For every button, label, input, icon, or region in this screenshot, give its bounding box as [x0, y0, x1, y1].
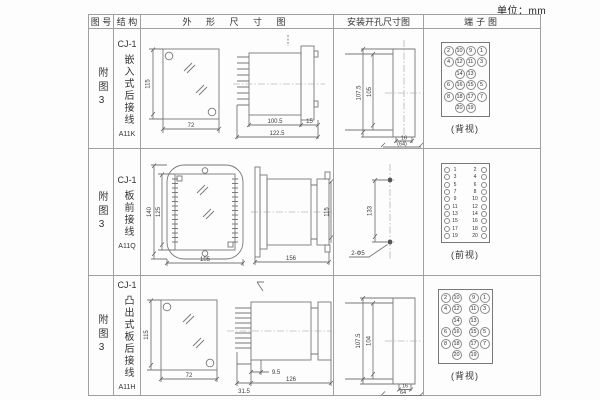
side-view: 9.5 31.5 126: [227, 282, 333, 395]
terminal-hole: [481, 226, 487, 232]
row2-structure: CJ-1 板前接线 A11Q: [114, 149, 141, 276]
terminal-number: 12: [472, 204, 479, 210]
code-label: A11H: [119, 384, 136, 391]
header-structure: 结 构: [114, 15, 141, 29]
model-label: CJ-1: [117, 280, 136, 290]
terminal-hole: [481, 196, 487, 202]
row2-terminal-cell: 12 34 56 78 910 1112 1314 1516 1718 1920…: [424, 149, 541, 276]
dim-front-height-outer: 140: [147, 206, 153, 217]
terminal-number: 15: [452, 218, 459, 224]
outline-drawing-a11k: 115 72 100.5 15: [141, 31, 333, 147]
terminal-hole: [444, 196, 450, 202]
dim-pin-depth: 31.5: [238, 389, 250, 395]
terminal-number: 17: [452, 226, 459, 232]
terminal-hole: [444, 204, 450, 210]
dim-front-height: 115: [146, 78, 152, 88]
terminal-pin: 19: [466, 103, 476, 113]
dim-hole-pitch: 133: [367, 205, 373, 216]
dim-outer-height: 107.5: [356, 332, 362, 348]
dim-lip: 9.5: [272, 370, 281, 376]
model-label: CJ-1: [117, 39, 136, 49]
row1-terminal-cell: 21091 412113 1413 616155 818177 2019 (背视…: [424, 29, 541, 149]
terminal-number: 6: [472, 182, 479, 188]
row1-fig-no: 附图3: [89, 29, 114, 149]
terminal-pin: 20: [455, 103, 465, 113]
front-view: 115 72: [146, 47, 222, 133]
row3-structure: CJ-1 凸出式板后接线 A11H: [114, 276, 141, 396]
terminal-number: 10: [472, 196, 479, 202]
dim-front-width: 105: [200, 257, 211, 263]
terminal-caption: (背视): [451, 122, 479, 135]
terminal-pin: 3: [480, 304, 490, 314]
terminal-pin: 9: [469, 293, 479, 303]
fig-no-label: 附图3: [96, 67, 106, 110]
terminal-pin: 17: [466, 92, 476, 102]
terminal-pin: 7: [480, 339, 490, 349]
header-fig-no: 图 号: [89, 15, 114, 29]
dim-side-length: 156: [286, 256, 297, 262]
terminal-pin: 3: [477, 57, 487, 67]
terminal-caption: (背视): [451, 369, 479, 382]
terminal-pin: 10: [452, 293, 462, 303]
terminal-pin: 5: [480, 327, 490, 337]
terminal-number: 7: [452, 189, 459, 195]
terminal-hole: [444, 182, 450, 188]
terminal-hole: [481, 218, 487, 224]
terminal-pin: 6: [444, 80, 454, 90]
terminal-pin: 10: [455, 46, 465, 56]
terminal-pin: 8: [441, 339, 451, 349]
terminal-hole: [481, 211, 487, 217]
terminal-number: 16: [472, 218, 479, 224]
dim-width-ref: (64): [397, 141, 407, 147]
terminal-hole: [444, 233, 450, 239]
dim-slot-width: 16: [401, 383, 407, 389]
terminal-pin: 2: [441, 293, 451, 303]
side-view: 100.5 15 122.5: [233, 35, 325, 139]
terminal-number: 8: [472, 189, 479, 195]
terminal-pin: 13: [469, 316, 479, 326]
terminal-pin: 9: [466, 46, 476, 56]
fig-no-label: 附图3: [96, 191, 106, 234]
front-view: 115 72: [144, 298, 219, 382]
dim-front-width: 72: [186, 373, 193, 379]
dimension-table: 图 号 结 构 外 形 尺 寸 图 安装开孔尺寸图 端子图 附图3 CJ-1 嵌…: [88, 14, 541, 396]
mount-label: 凸出式板后接线: [122, 295, 132, 379]
row3-outline-cell: 115 72 9.5: [141, 276, 334, 396]
terminal-hole: [481, 174, 487, 180]
outline-drawing-a11q: 140 125 105: [141, 157, 333, 267]
row2-install-cell: 133 2-Φ5: [334, 149, 424, 276]
terminal-pin: 18: [452, 339, 462, 349]
row3-terminal-cell: 21091 412113 1413 616155 818177 2019 (背视…: [424, 276, 541, 396]
terminal-hole: [481, 189, 487, 195]
header-outline: 外 形 尺 寸 图: [141, 15, 334, 29]
terminal-pin: 1: [480, 293, 490, 303]
install-drawing-a11q: 133 2-Φ5: [335, 156, 423, 268]
terminal-pin: 2: [444, 46, 454, 56]
terminal-pin: 19: [469, 350, 479, 360]
row1-outline-cell: 115 72 100.5 15: [141, 29, 334, 149]
dim-depth-total: 122.5: [269, 131, 285, 137]
terminal-pin: 15: [469, 327, 479, 337]
terminal-number: 1: [452, 167, 459, 173]
terminal-number: 9: [452, 196, 459, 202]
terminal-pin: 16: [455, 80, 465, 90]
mount-label: 嵌入式后接线: [122, 54, 132, 126]
terminal-pin: 12: [455, 57, 465, 67]
terminal-hole: [481, 167, 487, 173]
row1-structure: CJ-1 嵌入式后接线 A11K: [114, 29, 141, 149]
terminal-pin: 1: [477, 46, 487, 56]
terminal-pin: 20: [452, 350, 462, 360]
terminal-pin: 14: [455, 69, 465, 79]
dim-front-height-inner: 125: [156, 206, 162, 217]
terminal-pin: 8: [444, 92, 454, 102]
dim-body-length: 126: [286, 377, 297, 383]
dim-flange: 15: [306, 119, 313, 125]
dim-inner-height: 104: [366, 335, 372, 346]
dim-depth-body: 100.5: [267, 119, 283, 125]
terminal-pin: 17: [469, 339, 479, 349]
document-page: 单位：mm 图 号 结 构 外 形 尺 寸 图 安装开孔尺寸图 端子图 附图3 …: [0, 0, 600, 400]
terminal-pin: 4: [441, 304, 451, 314]
header-terminal: 端子图: [424, 15, 541, 29]
model-label: CJ-1: [117, 175, 136, 185]
terminal-pin: 5: [477, 80, 487, 90]
dim-hole-note: 2-Φ5: [351, 251, 365, 257]
row3-install-cell: 107.5 104 16 64: [334, 276, 424, 396]
terminal-diagram-a11k: 21091 412113 1413 616155 818177 2019: [441, 42, 490, 118]
terminal-number: 3: [452, 174, 459, 180]
terminal-pin: 18: [455, 92, 465, 102]
terminal-hole: [444, 189, 450, 195]
terminal-pin: 16: [452, 327, 462, 337]
code-label: A11Q: [118, 243, 135, 250]
fig-no-label: 附图3: [96, 314, 106, 357]
row3-fig-no: 附图3: [89, 276, 114, 396]
terminal-hole: [444, 226, 450, 232]
terminal-hole: [481, 182, 487, 188]
terminal-diagram-a11q: 12 34 56 78 910 1112 1314 1516 1718 1920: [441, 163, 490, 244]
header-install: 安装开孔尺寸图: [334, 15, 424, 29]
dim-front-height: 115: [144, 329, 150, 339]
terminal-hole: [444, 167, 450, 173]
terminal-caption: (前视): [451, 248, 479, 261]
terminal-number: 2: [472, 167, 479, 173]
code-label: A11K: [119, 131, 136, 138]
dim-outer-height: 107.5: [356, 84, 362, 100]
dim-width-ref: 64: [399, 390, 405, 396]
install-drawing-a11h: 107.5 104 16 64: [335, 275, 423, 397]
terminal-number: 4: [472, 174, 479, 180]
row1-install-cell: 107.5 105 16 (64): [334, 29, 424, 149]
terminal-pin: 6: [441, 327, 451, 337]
terminal-hole: [444, 174, 450, 180]
terminal-number: 19: [452, 233, 459, 239]
front-view: 140 125 105: [147, 164, 245, 267]
dim-side-height: 115: [325, 207, 331, 217]
terminal-number: 18: [472, 226, 479, 232]
terminal-pin: 11: [466, 57, 476, 67]
dim-front-width: 72: [188, 123, 195, 129]
terminal-pin: 14: [452, 316, 462, 326]
install-drawing-a11k: 107.5 105 16 (64): [335, 30, 423, 148]
terminal-pin: 13: [466, 69, 476, 79]
terminal-hole: [444, 218, 450, 224]
terminal-number: 14: [472, 211, 479, 217]
terminal-number: 20: [472, 233, 479, 239]
terminal-hole: [481, 204, 487, 210]
row2-fig-no: 附图3: [89, 149, 114, 276]
terminal-hole: [481, 233, 487, 239]
terminal-pin: 7: [477, 92, 487, 102]
terminal-pin: 12: [452, 304, 462, 314]
row2-outline-cell: 140 125 105: [141, 149, 334, 276]
terminal-pin: 11: [469, 304, 479, 314]
side-view: 156 115: [251, 167, 333, 265]
dim-inner-height: 105: [367, 86, 373, 97]
terminal-pin: 4: [444, 57, 454, 67]
mount-label: 板前接线: [122, 190, 132, 238]
outline-drawing-a11h: 115 72 9.5: [141, 276, 333, 396]
terminal-diagram-a11h: 21091 412113 1413 616155 818177 2019: [438, 289, 493, 365]
terminal-pin: 15: [466, 80, 476, 90]
terminal-hole: [444, 211, 450, 217]
terminal-number: 5: [452, 182, 459, 188]
terminal-number: 13: [452, 211, 459, 217]
terminal-number: 11: [452, 204, 459, 210]
